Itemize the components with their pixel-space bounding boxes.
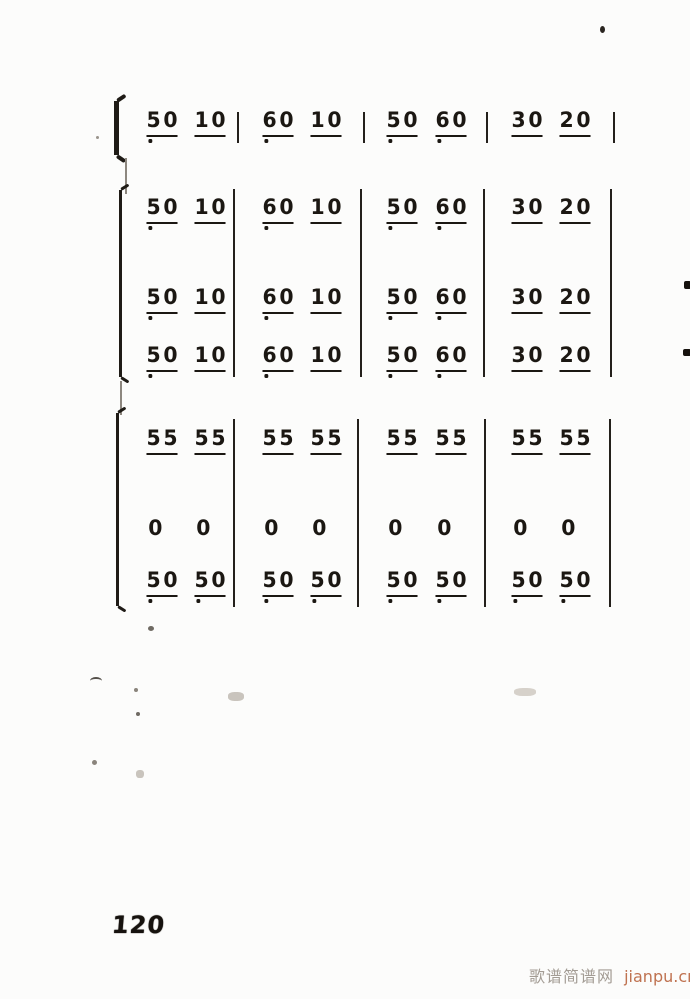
low-octave-dot <box>196 599 200 603</box>
note-digit: 0 <box>561 517 575 540</box>
note-beat-group: 50 <box>146 109 177 137</box>
note-digit: 0 <box>163 196 177 219</box>
note-digit: 5 <box>435 569 449 592</box>
note-beat-group: 10 <box>194 109 225 137</box>
note-digit: 3 <box>511 109 525 132</box>
note-digit: 5 <box>403 427 417 450</box>
note-digit: 0 <box>403 569 417 592</box>
note-beat-group: 20 <box>559 196 590 224</box>
ink-speck <box>134 688 138 692</box>
note-digit: 6 <box>262 109 276 132</box>
low-octave-dot <box>437 599 441 603</box>
note-digit: 6 <box>262 196 276 219</box>
barline <box>483 189 485 377</box>
system-bracket <box>116 413 128 606</box>
note-digit: 5 <box>279 427 293 450</box>
note-beat-group: 55 <box>386 427 417 455</box>
note-digit: 5 <box>146 569 160 592</box>
note-digit: 0 <box>576 109 590 132</box>
ink-speck <box>600 26 605 33</box>
note-digit: 2 <box>559 196 573 219</box>
note-beat-group: 60 <box>435 109 466 137</box>
rest-note: 0 <box>312 517 326 543</box>
note-digit: 5 <box>262 427 276 450</box>
note-beat-group: 10 <box>194 344 225 372</box>
note-digit: 0 <box>279 109 293 132</box>
note-beat-group: 50 <box>146 196 177 224</box>
note-digit: 0 <box>528 344 542 367</box>
note-beat-group: 10 <box>194 196 225 224</box>
note-beat-group: 50 <box>310 569 341 597</box>
note-beat-group: 55 <box>511 427 542 455</box>
note-digit: 1 <box>310 344 324 367</box>
note-beat-group: 20 <box>559 286 590 314</box>
low-octave-dot <box>148 599 152 603</box>
note-digit: 5 <box>194 427 208 450</box>
note-digit: 0 <box>452 286 466 309</box>
rest-note: 0 <box>264 517 278 543</box>
barline <box>486 112 488 143</box>
note-beat-group: 55 <box>194 427 225 455</box>
note-digit: 0 <box>388 517 402 540</box>
note-beat-group: 60 <box>435 196 466 224</box>
note-digit: 0 <box>279 344 293 367</box>
note-digit: 0 <box>327 569 341 592</box>
note-digit: 0 <box>211 286 225 309</box>
note-digit: 0 <box>211 109 225 132</box>
note-beat-group: 50 <box>386 109 417 137</box>
note-digit: 5 <box>327 427 341 450</box>
note-digit: 0 <box>211 569 225 592</box>
low-octave-dot <box>312 599 316 603</box>
low-octave-dot <box>148 374 152 378</box>
note-digit: 5 <box>163 427 177 450</box>
low-octave-dot <box>437 226 441 230</box>
note-digit: 6 <box>435 344 449 367</box>
low-octave-dot <box>388 139 392 143</box>
note-digit: 1 <box>310 109 324 132</box>
note-beat-group: 50 <box>194 569 225 597</box>
note-beat-group: 50 <box>435 569 466 597</box>
rest-note: 0 <box>437 517 451 543</box>
ink-speck <box>90 677 102 685</box>
note-digit: 5 <box>386 569 400 592</box>
barline <box>233 189 235 377</box>
low-octave-dot <box>437 316 441 320</box>
note-beat-group: 60 <box>262 109 293 137</box>
watermark-site-name: 歌谱简谱网 <box>529 967 614 986</box>
note-digit: 0 <box>312 517 326 540</box>
note-digit: 1 <box>310 286 324 309</box>
note-digit: 0 <box>452 196 466 219</box>
low-octave-dot <box>264 226 268 230</box>
note-digit: 5 <box>194 569 208 592</box>
note-digit: 6 <box>435 286 449 309</box>
note-digit: 5 <box>262 569 276 592</box>
ink-speck <box>228 692 244 701</box>
note-beat-group: 30 <box>511 109 542 137</box>
note-beat-group: 10 <box>310 344 341 372</box>
note-beat-group: 10 <box>310 286 341 314</box>
note-digit: 5 <box>386 196 400 219</box>
low-octave-dot <box>437 139 441 143</box>
note-digit: 0 <box>196 517 210 540</box>
final-barline <box>609 419 611 607</box>
note-beat-group: 50 <box>262 569 293 597</box>
note-digit: 0 <box>264 517 278 540</box>
note-digit: 5 <box>511 569 525 592</box>
ink-speck <box>96 136 99 139</box>
note-digit: 0 <box>403 196 417 219</box>
barline <box>484 419 486 607</box>
note-digit: 5 <box>528 427 542 450</box>
barline <box>233 419 235 607</box>
rest-note: 0 <box>388 517 402 543</box>
note-beat-group: 20 <box>559 344 590 372</box>
note-digit: 0 <box>437 517 451 540</box>
note-digit: 2 <box>559 286 573 309</box>
note-digit: 2 <box>559 109 573 132</box>
rest-note: 0 <box>196 517 210 543</box>
barline <box>237 112 239 143</box>
note-digit: 5 <box>559 569 573 592</box>
low-octave-dot <box>148 139 152 143</box>
note-digit: 1 <box>194 286 208 309</box>
note-beat-group: 60 <box>262 196 293 224</box>
note-digit: 0 <box>163 109 177 132</box>
low-octave-dot <box>513 599 517 603</box>
note-digit: 0 <box>528 196 542 219</box>
note-digit: 5 <box>452 427 466 450</box>
low-octave-dot <box>148 316 152 320</box>
note-digit: 0 <box>403 286 417 309</box>
rest-note: 0 <box>561 517 575 543</box>
note-digit: 5 <box>386 427 400 450</box>
note-digit: 5 <box>146 427 160 450</box>
low-octave-dot <box>264 599 268 603</box>
note-digit: 0 <box>528 109 542 132</box>
note-beat-group: 30 <box>511 344 542 372</box>
note-beat-group: 60 <box>435 286 466 314</box>
note-beat-group: 10 <box>310 196 341 224</box>
note-digit: 0 <box>327 344 341 367</box>
note-digit: 0 <box>513 517 527 540</box>
low-octave-dot <box>388 316 392 320</box>
low-octave-dot <box>388 226 392 230</box>
note-beat-group: 30 <box>511 286 542 314</box>
note-digit: 0 <box>452 109 466 132</box>
note-beat-group: 60 <box>262 344 293 372</box>
barline <box>357 419 359 607</box>
ink-speck <box>92 760 97 765</box>
note-digit: 5 <box>146 286 160 309</box>
note-beat-group: 10 <box>310 109 341 137</box>
sheet-music-page: 5010601050603020501060105060302050106010… <box>0 0 690 999</box>
rest-note: 0 <box>513 517 527 543</box>
note-digit: 0 <box>211 196 225 219</box>
watermark: 歌谱简谱网 jianpu.cn <box>529 963 690 987</box>
note-digit: 0 <box>327 196 341 219</box>
note-digit: 0 <box>279 286 293 309</box>
note-beat-group: 50 <box>386 286 417 314</box>
low-octave-dot <box>148 226 152 230</box>
note-beat-group: 30 <box>511 196 542 224</box>
note-beat-group: 55 <box>146 427 177 455</box>
note-beat-group: 50 <box>386 344 417 372</box>
note-digit: 0 <box>576 569 590 592</box>
ink-speck <box>136 712 140 716</box>
ink-speck <box>148 626 154 631</box>
note-digit: 0 <box>528 569 542 592</box>
barline <box>360 189 362 377</box>
note-digit: 0 <box>163 286 177 309</box>
note-digit: 0 <box>576 344 590 367</box>
low-octave-dot <box>388 599 392 603</box>
note-digit: 5 <box>386 344 400 367</box>
system-bracket <box>119 190 131 377</box>
note-digit: 6 <box>435 109 449 132</box>
note-digit: 5 <box>559 427 573 450</box>
note-digit: 0 <box>528 286 542 309</box>
note-digit: 5 <box>386 109 400 132</box>
note-digit: 1 <box>194 109 208 132</box>
system-brace <box>114 101 129 155</box>
note-digit: 5 <box>386 286 400 309</box>
note-beat-group: 55 <box>435 427 466 455</box>
note-beat-group: 60 <box>262 286 293 314</box>
low-octave-dot <box>561 599 565 603</box>
note-beat-group: 55 <box>559 427 590 455</box>
low-octave-dot <box>388 374 392 378</box>
note-beat-group: 50 <box>146 286 177 314</box>
note-digit: 0 <box>163 344 177 367</box>
note-digit: 5 <box>511 427 525 450</box>
ink-speck <box>136 770 144 778</box>
note-digit: 5 <box>310 569 324 592</box>
note-digit: 5 <box>310 427 324 450</box>
note-digit: 3 <box>511 196 525 219</box>
note-beat-group: 55 <box>262 427 293 455</box>
low-octave-dot <box>264 139 268 143</box>
note-digit: 0 <box>403 344 417 367</box>
note-digit: 0 <box>148 517 162 540</box>
note-digit: 6 <box>262 344 276 367</box>
page-number: 120 <box>111 911 167 939</box>
note-digit: 5 <box>146 344 160 367</box>
note-digit: 5 <box>576 427 590 450</box>
note-digit: 0 <box>327 286 341 309</box>
note-beat-group: 55 <box>310 427 341 455</box>
note-beat-group: 20 <box>559 109 590 137</box>
note-digit: 0 <box>327 109 341 132</box>
note-beat-group: 50 <box>511 569 542 597</box>
note-digit: 0 <box>279 569 293 592</box>
ink-speck <box>684 281 690 289</box>
note-digit: 5 <box>146 109 160 132</box>
note-digit: 6 <box>262 286 276 309</box>
low-octave-dot <box>264 374 268 378</box>
note-digit: 2 <box>559 344 573 367</box>
note-digit: 0 <box>163 569 177 592</box>
note-beat-group: 10 <box>194 286 225 314</box>
note-digit: 1 <box>310 196 324 219</box>
final-barline <box>610 189 612 377</box>
note-digit: 3 <box>511 344 525 367</box>
note-digit: 1 <box>194 196 208 219</box>
rest-note: 0 <box>148 517 162 543</box>
note-digit: 5 <box>435 427 449 450</box>
note-digit: 0 <box>279 196 293 219</box>
note-beat-group: 50 <box>386 569 417 597</box>
ink-speck <box>683 349 690 356</box>
note-digit: 0 <box>211 344 225 367</box>
barline <box>363 112 365 143</box>
note-beat-group: 50 <box>146 569 177 597</box>
note-beat-group: 50 <box>386 196 417 224</box>
note-beat-group: 50 <box>146 344 177 372</box>
watermark-site-url: jianpu.cn <box>624 967 690 986</box>
low-octave-dot <box>264 316 268 320</box>
note-digit: 0 <box>576 286 590 309</box>
note-digit: 0 <box>452 344 466 367</box>
note-digit: 0 <box>576 196 590 219</box>
final-barline <box>613 112 615 143</box>
note-digit: 3 <box>511 286 525 309</box>
low-octave-dot <box>437 374 441 378</box>
note-digit: 0 <box>403 109 417 132</box>
ink-speck <box>514 688 536 696</box>
note-beat-group: 60 <box>435 344 466 372</box>
note-digit: 5 <box>146 196 160 219</box>
note-digit: 5 <box>211 427 225 450</box>
note-beat-group: 50 <box>559 569 590 597</box>
note-digit: 1 <box>194 344 208 367</box>
note-digit: 0 <box>452 569 466 592</box>
note-digit: 6 <box>435 196 449 219</box>
